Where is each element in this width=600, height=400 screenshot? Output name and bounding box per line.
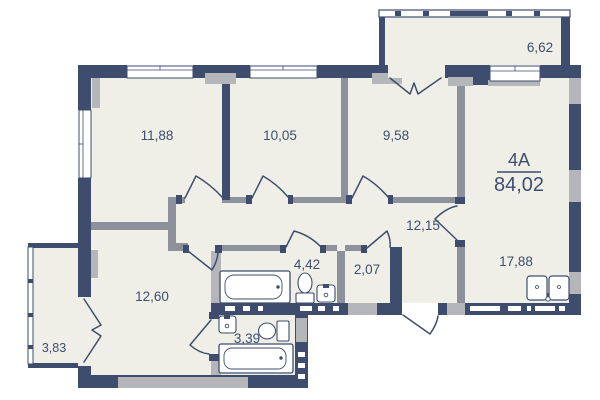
plan-shape <box>379 10 385 65</box>
plan-shape <box>455 240 465 247</box>
unit-number: 4A <box>508 150 530 170</box>
floor-plan-page: 11,88 10,05 9,58 6,62 12,15 4,42 2,07 17… <box>0 0 600 400</box>
label-kitchen: 17,88 <box>499 254 533 269</box>
plan-shape <box>78 178 91 297</box>
plan-shape <box>569 78 581 104</box>
label-living: 12,60 <box>135 289 169 304</box>
plan-shape <box>506 11 512 16</box>
plan-shape <box>390 247 402 303</box>
plan-shape <box>28 279 33 283</box>
plan-shape <box>28 363 84 368</box>
plan-shape <box>92 78 100 108</box>
window-bedroom-1-left <box>79 110 91 178</box>
plan-shape <box>470 306 500 311</box>
plan-shape <box>243 306 250 311</box>
plan-shape <box>225 306 235 311</box>
bathtub-bathroom <box>220 271 290 303</box>
plan-shape <box>298 273 312 293</box>
plan-shape <box>337 251 345 303</box>
plan-shape <box>209 354 219 361</box>
plan-shape <box>527 306 531 311</box>
plan-shape <box>176 195 182 204</box>
plan-shape <box>218 245 286 251</box>
window-bedroom-1 <box>127 66 193 78</box>
plan-shape <box>569 272 581 294</box>
plan-shape <box>549 276 569 300</box>
label-bedroom-2: 10,05 <box>263 128 297 143</box>
label-balcony-left: 3,83 <box>42 341 66 355</box>
label-bedroom-1: 11,88 <box>141 128 174 143</box>
plan-shape <box>258 306 263 311</box>
plan-shape <box>346 195 352 204</box>
plan-shape <box>205 73 236 84</box>
plan-shape <box>250 66 317 78</box>
label-storage: 2,07 <box>354 262 380 277</box>
plan-shape <box>423 11 429 16</box>
plan-shape <box>561 10 570 65</box>
plan-shape <box>276 285 279 288</box>
plan-shape <box>448 77 473 86</box>
plan-shape <box>323 284 329 288</box>
plan-shape <box>361 245 367 253</box>
washbasin-bathroom <box>317 284 335 302</box>
plan-shape <box>318 306 325 311</box>
plan-shape <box>569 170 581 202</box>
plan-shape <box>280 245 286 253</box>
plan-shape <box>508 306 521 311</box>
label-balcony-top: 6,62 <box>527 40 553 55</box>
door-entrance <box>403 315 438 334</box>
toilet-bathroom <box>296 273 314 303</box>
window-bedroom-2 <box>250 66 317 78</box>
plan-shape <box>348 303 377 315</box>
plan-shape <box>534 11 540 16</box>
plan-shape <box>447 303 465 315</box>
plan-shape <box>457 85 465 203</box>
plan-shape <box>535 306 555 311</box>
plan-shape <box>300 306 312 311</box>
plan-shape <box>209 312 219 319</box>
plan-shape <box>28 243 84 248</box>
plan-shape <box>78 65 91 110</box>
plan-shape <box>118 377 248 388</box>
plan-shape <box>246 195 252 204</box>
plan-shape <box>388 195 393 204</box>
plan-shape <box>341 78 348 200</box>
plan-shape <box>168 197 176 251</box>
entrance-opening <box>402 303 438 315</box>
label-bathroom: 4,42 <box>294 257 320 272</box>
plan-shape <box>559 306 565 311</box>
bathtub-wc <box>219 344 293 373</box>
plan-shape <box>546 297 550 301</box>
plan-shape <box>222 78 230 200</box>
plan-shape <box>377 303 402 315</box>
plan-shape <box>455 197 465 204</box>
plan-shape <box>91 222 168 230</box>
plan-shape <box>259 323 276 339</box>
plan-shape <box>298 352 305 357</box>
plan-shape <box>28 345 33 349</box>
plan-shape <box>388 197 457 203</box>
label-hallway: 12,15 <box>406 218 440 233</box>
plan-shape <box>298 363 305 368</box>
plan-shape <box>296 293 314 303</box>
plan-shape <box>28 313 33 317</box>
plan-shape <box>333 306 339 311</box>
plan-shape <box>91 250 98 278</box>
unit-total-area: 84,02 <box>494 174 544 196</box>
balcony-left-glazing <box>28 247 33 364</box>
window-kitchen-top <box>490 66 540 81</box>
plan-shape <box>279 356 282 359</box>
plan-shape <box>277 321 289 341</box>
plan-shape <box>296 318 307 342</box>
plan-shape <box>224 315 230 319</box>
balcony-top-glazing <box>379 10 570 17</box>
plan-shape <box>298 374 305 379</box>
balcony-top-door-opening <box>388 65 445 78</box>
label-bedroom-3: 9,58 <box>383 128 409 143</box>
plan-shape <box>527 276 547 300</box>
plan-shape <box>450 11 488 16</box>
plan-shape <box>457 242 465 303</box>
plan-shape <box>395 11 401 16</box>
plan-shape <box>320 245 326 253</box>
plan-shape <box>288 195 293 204</box>
label-wc: 3,39 <box>234 331 260 346</box>
floor-plan: 11,88 10,05 9,58 6,62 12,15 4,42 2,07 17… <box>0 0 600 400</box>
